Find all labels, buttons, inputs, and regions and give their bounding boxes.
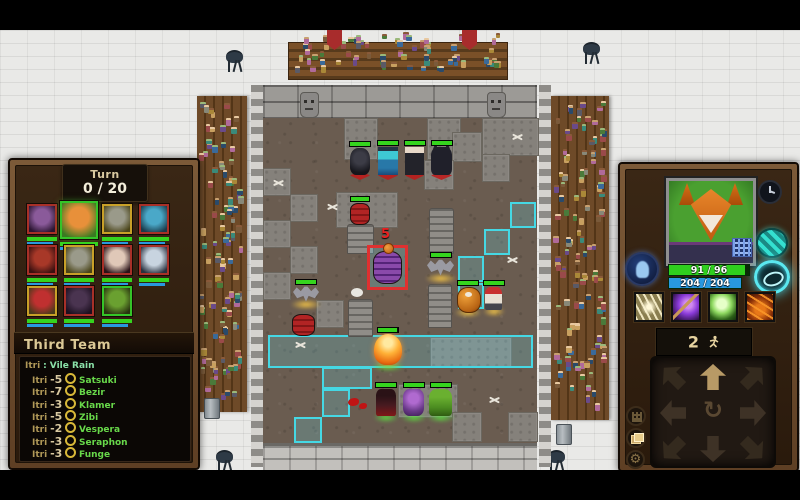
gear-ring-icon bbox=[65, 398, 76, 409]
portrait-bat-2[interactable] bbox=[64, 245, 94, 275]
movement-tile[interactable] bbox=[484, 229, 510, 255]
gear-ring-icon bbox=[65, 385, 76, 396]
buff-icon[interactable] bbox=[732, 238, 752, 257]
mana-bar: 204 / 204 bbox=[668, 277, 742, 289]
unit-hp-bar bbox=[430, 382, 452, 388]
redcap-sprite bbox=[485, 287, 502, 310]
layers-button[interactable] bbox=[626, 428, 646, 448]
brazier bbox=[226, 46, 243, 73]
unit-hp-bar bbox=[430, 252, 452, 258]
ability-acid-orb[interactable] bbox=[708, 292, 738, 322]
log-entry: Itri -7 Bezir bbox=[32, 385, 105, 398]
unit-hp-bar bbox=[483, 280, 505, 286]
move-points-value: 2 bbox=[688, 333, 699, 352]
unit-shade-enemy[interactable] bbox=[350, 148, 370, 175]
fox-ear-right bbox=[727, 183, 743, 205]
game-screen: 5 Turn 0 / 20 Third Team Itri : Vile Rai… bbox=[0, 0, 800, 500]
unit-bat-west[interactable] bbox=[293, 286, 319, 303]
active-ring-icon[interactable] bbox=[754, 260, 790, 294]
bones-decoration bbox=[326, 202, 339, 212]
stone-tile bbox=[290, 194, 318, 222]
portrait-orc[interactable] bbox=[102, 286, 132, 316]
brazier bbox=[583, 38, 600, 65]
ability-shadow-axe[interactable] bbox=[671, 292, 701, 322]
move-left-button[interactable] bbox=[660, 400, 686, 426]
roster-hp-bar bbox=[102, 237, 132, 241]
portrait-mushroom[interactable] bbox=[27, 286, 57, 316]
rotate-button[interactable]: ↻ bbox=[700, 396, 726, 426]
stone-tile bbox=[482, 154, 510, 182]
grid-icon bbox=[632, 412, 642, 422]
gear-ring-icon bbox=[65, 410, 76, 421]
combat-log: Itri : Vile RainItri -5 SatsukiItri -7 B… bbox=[19, 356, 191, 462]
gear-ring-icon bbox=[65, 447, 76, 458]
hp-text: 91 / 96 bbox=[669, 265, 749, 276]
movement-tile[interactable] bbox=[322, 389, 350, 417]
log-header: Itri : Vile Rain bbox=[25, 361, 95, 371]
unit-red-bandit[interactable] bbox=[485, 287, 502, 310]
shade-sprite bbox=[350, 148, 370, 175]
move-down-left-button[interactable] bbox=[655, 431, 692, 468]
unit-hp-bar bbox=[349, 141, 371, 147]
purplemage-sprite bbox=[403, 389, 424, 416]
arena-right-wall bbox=[539, 85, 551, 467]
roster-hp-bar bbox=[27, 237, 57, 241]
mana-text: 204 / 204 bbox=[669, 278, 741, 289]
roster-hp-bar bbox=[102, 319, 132, 323]
portrait-yeti[interactable] bbox=[139, 245, 169, 275]
movement-pad[interactable]: ↻ bbox=[650, 356, 776, 468]
stone-tile bbox=[452, 412, 482, 442]
portrait-fox[interactable] bbox=[60, 201, 98, 239]
unit-hp-bar bbox=[377, 327, 399, 333]
movement-tile[interactable] bbox=[294, 417, 322, 443]
team-title: Third Team bbox=[24, 338, 111, 353]
barrel-red[interactable] bbox=[292, 314, 315, 336]
bubble-decoration bbox=[351, 288, 363, 297]
move-up-button[interactable] bbox=[700, 364, 726, 390]
unit-hp-bar bbox=[431, 140, 453, 146]
roster-mana-bar bbox=[139, 283, 165, 286]
attack-type-icon bbox=[383, 243, 394, 254]
unit-bat-east[interactable] bbox=[427, 259, 454, 277]
movement-tile[interactable] bbox=[510, 202, 536, 228]
bones-decoration bbox=[294, 340, 307, 350]
log-entry: Itri -2 Vespera bbox=[32, 422, 120, 435]
move-down-right-button[interactable] bbox=[735, 431, 772, 468]
blackcat-sprite bbox=[431, 147, 452, 175]
unit-assassin-ally[interactable] bbox=[376, 389, 396, 416]
portrait-bat[interactable] bbox=[102, 204, 132, 234]
stone-tile bbox=[508, 412, 538, 442]
unit-blue-warrior-enemy[interactable] bbox=[378, 147, 398, 175]
timer-button[interactable] bbox=[758, 180, 782, 204]
bones-decoration bbox=[272, 178, 285, 188]
portrait-imp[interactable] bbox=[27, 204, 57, 234]
bluewarrior-sprite bbox=[378, 147, 398, 175]
bones-decoration bbox=[511, 132, 524, 142]
assassin-sprite bbox=[376, 389, 396, 416]
portrait-shade[interactable] bbox=[64, 286, 94, 316]
palerogue-sprite bbox=[405, 147, 424, 175]
bones-decoration bbox=[488, 395, 501, 405]
orc-sprite bbox=[429, 389, 452, 416]
settings-button[interactable]: ⚙ bbox=[626, 450, 645, 469]
unit-mage-ally[interactable] bbox=[403, 389, 424, 416]
team-panel: Turn 0 / 20 Third Team Itri : Vile RainI… bbox=[8, 158, 200, 470]
log-entry: Itri -3 Seraphon bbox=[32, 435, 128, 448]
team-name-strip: Third Team bbox=[14, 332, 194, 354]
stone-tile bbox=[452, 132, 482, 162]
unit-hp-bar bbox=[403, 382, 425, 388]
portrait-siren[interactable] bbox=[139, 204, 169, 234]
waste-bin bbox=[204, 398, 220, 419]
damage-preview-number: 5 bbox=[381, 227, 390, 242]
move-down-button[interactable] bbox=[700, 436, 726, 462]
unit-hp-bar bbox=[295, 279, 317, 285]
hero-panel: 91 / 96 204 / 204 2 ↻ ⚙ bbox=[618, 162, 799, 472]
unit-fox-hero[interactable] bbox=[374, 334, 402, 365]
shield-orb-icon[interactable] bbox=[756, 228, 788, 258]
barrel-red[interactable] bbox=[350, 203, 370, 225]
log-entry: Itri -5 Zibi bbox=[32, 410, 98, 423]
tombstone bbox=[429, 208, 454, 254]
roster-hp-bar bbox=[64, 319, 94, 323]
unit-hp-bar bbox=[377, 140, 399, 146]
pumpkin-sprite bbox=[457, 287, 481, 313]
brazier bbox=[216, 446, 233, 473]
unit-hp-bar bbox=[457, 280, 479, 286]
waste-bin bbox=[556, 424, 572, 445]
fox-sprite bbox=[374, 334, 402, 365]
grid-toggle-button[interactable] bbox=[626, 406, 646, 426]
roster-mana-bar bbox=[27, 324, 53, 327]
gargoyle-statue bbox=[300, 92, 319, 118]
fox-ear-left bbox=[679, 183, 695, 205]
roster-mana-bar bbox=[102, 324, 128, 327]
runner-icon bbox=[707, 335, 720, 350]
barrel-purple[interactable] bbox=[373, 251, 402, 284]
log-entry: Itri -5 Satsuki bbox=[32, 373, 117, 386]
ability-lava-dash[interactable] bbox=[745, 292, 775, 322]
portrait-demon[interactable] bbox=[27, 245, 57, 275]
unit-pale-rogue-enemy[interactable] bbox=[405, 147, 424, 175]
roster-grid bbox=[10, 160, 198, 340]
move-points-plaque: 2 bbox=[656, 328, 752, 356]
unit-hp-bar bbox=[375, 382, 397, 388]
tombstone bbox=[428, 284, 452, 328]
unit-hp-bar bbox=[404, 140, 426, 146]
movement-tile[interactable] bbox=[322, 367, 372, 389]
ability-spirit-claws[interactable] bbox=[634, 292, 664, 322]
roster-hp-bar bbox=[27, 278, 57, 282]
barrel-hp-bar bbox=[350, 196, 370, 202]
stone-tile bbox=[290, 246, 318, 274]
portrait-vampire[interactable] bbox=[102, 245, 132, 275]
spirit-ability-icon[interactable] bbox=[625, 252, 659, 286]
hp-bar: 91 / 96 bbox=[668, 264, 750, 276]
unit-pumpkin-keg[interactable] bbox=[457, 287, 479, 311]
move-right-button[interactable] bbox=[740, 400, 766, 426]
tombstone bbox=[348, 299, 373, 337]
roster-hp-bar bbox=[64, 278, 94, 282]
gear-ring-icon bbox=[65, 422, 76, 433]
stone-tile bbox=[263, 272, 291, 300]
gargoyle-statue bbox=[487, 92, 506, 118]
roster-hp-bar bbox=[27, 319, 57, 323]
arena-left-wall bbox=[251, 85, 263, 467]
unit-orc-ally[interactable] bbox=[429, 389, 452, 416]
roster-hp-bar bbox=[139, 237, 169, 241]
letterbox-top bbox=[0, 0, 800, 30]
gear-icon: ⚙ bbox=[628, 452, 643, 467]
unit-black-cat-enemy[interactable] bbox=[431, 147, 452, 175]
move-up-left-button[interactable] bbox=[655, 359, 692, 396]
move-up-right-button[interactable] bbox=[735, 359, 772, 396]
gear-ring-icon bbox=[65, 435, 76, 446]
bones-decoration bbox=[506, 255, 519, 265]
gear-ring-icon bbox=[65, 373, 76, 384]
arena-bottom-wall bbox=[263, 443, 537, 470]
log-entry: Itri -3 Funge bbox=[32, 447, 110, 460]
movement-tile[interactable] bbox=[458, 256, 484, 282]
stone-tile bbox=[263, 220, 291, 248]
log-entry: Itri -3 Klamer bbox=[32, 398, 115, 411]
roster-hp-bar bbox=[102, 278, 132, 282]
roster-hp-bar bbox=[139, 278, 169, 282]
roster-mana-bar bbox=[64, 324, 90, 327]
letterbox-bottom bbox=[0, 470, 800, 500]
